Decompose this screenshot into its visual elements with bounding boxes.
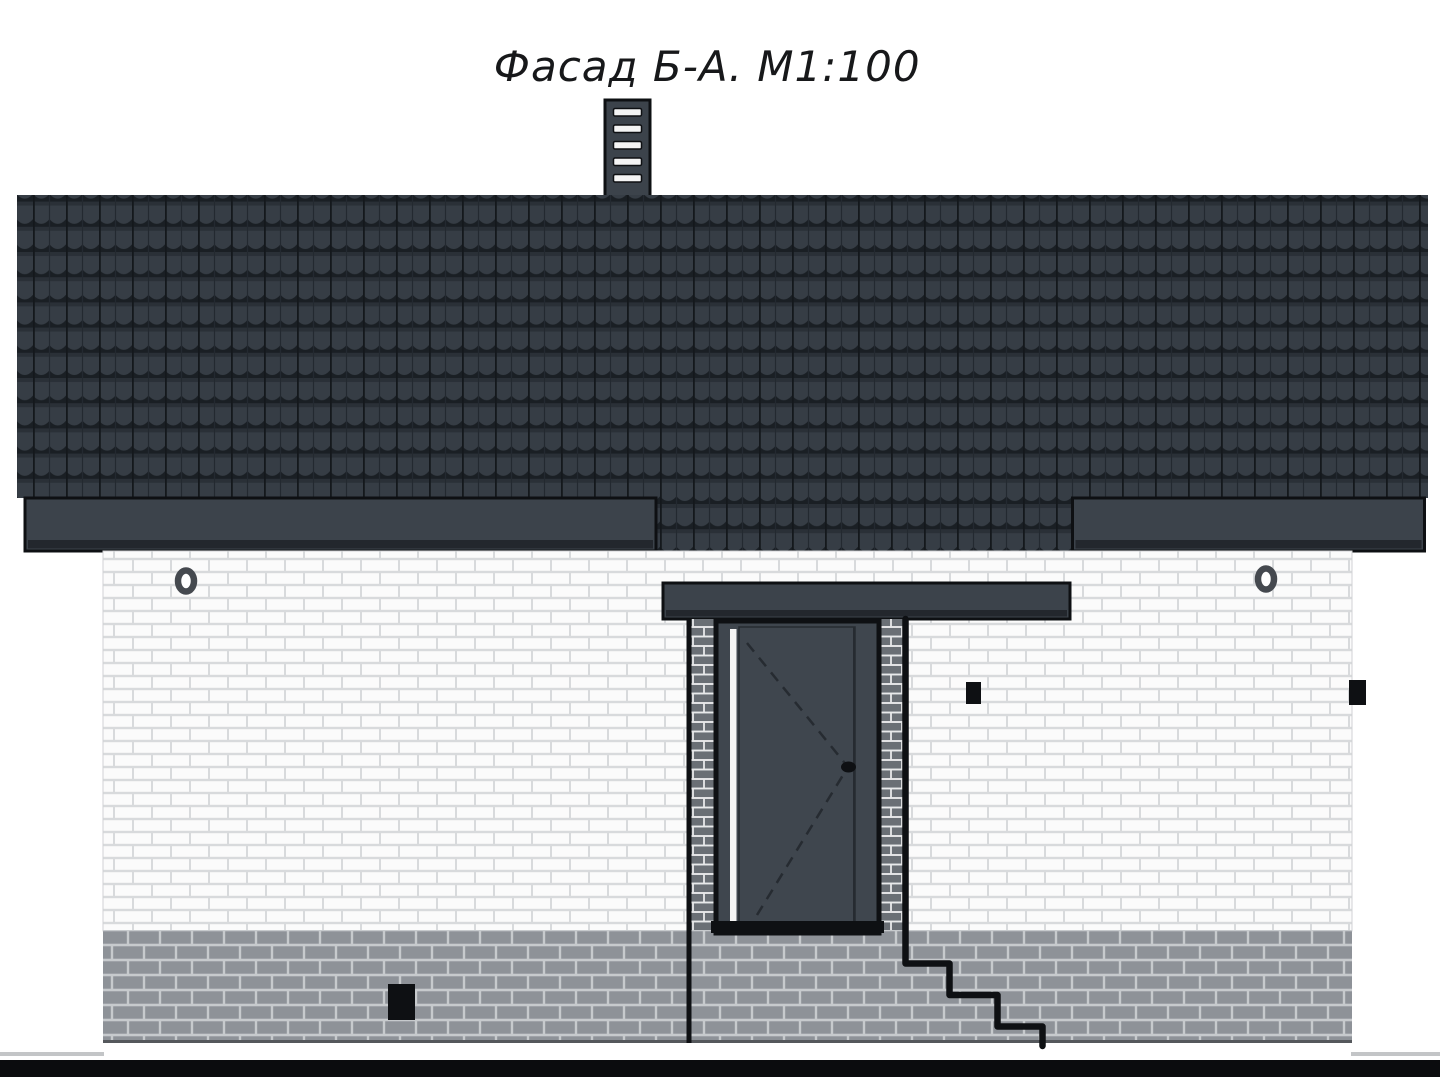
plinth-vent-square: [388, 984, 415, 1020]
eaves-fascia-left: [25, 498, 656, 551]
chimney-vent-slat: [614, 158, 642, 166]
ground-line-right: [1351, 1052, 1440, 1056]
chimney-vent-slat: [614, 175, 642, 183]
ground-line-left: [0, 1052, 104, 1056]
porch-canopy-fascia: [663, 583, 1070, 619]
ground-band: [0, 1060, 1440, 1077]
porch-pillar-right: [879, 619, 905, 930]
chimney-vent-slat: [614, 142, 642, 150]
wall-vent-ring-right: [1258, 569, 1274, 590]
facade-elevation-drawing: Фасад Б-А. М1:100: [0, 0, 1440, 1080]
chimney-vent-slat: [614, 125, 642, 133]
fascia-drip-edge: [666, 610, 1067, 617]
wall-vent-square: [966, 682, 981, 704]
eaves-fascia-right: [1073, 498, 1425, 551]
door-frame-trim: [730, 629, 737, 926]
chimney-vent-slat: [614, 109, 642, 117]
door-leaf: [739, 627, 855, 927]
wall-edge-vent-square: [1349, 680, 1366, 705]
ground: [0, 1052, 1440, 1077]
door-handle: [841, 762, 856, 773]
facade-elevation-canvas: [0, 0, 1440, 1080]
fascia-drip-edge: [1076, 540, 1422, 549]
plinth-gray-brick: [103, 930, 1352, 1042]
porch-pillar-left: [690, 619, 716, 930]
chimney: [605, 100, 650, 200]
plinth-base-line: [103, 1040, 1352, 1043]
entrance-door: [711, 621, 884, 933]
fascia-drip-edge: [28, 540, 653, 549]
wall-vent-ring-left: [178, 571, 194, 592]
door-sill: [711, 921, 884, 933]
